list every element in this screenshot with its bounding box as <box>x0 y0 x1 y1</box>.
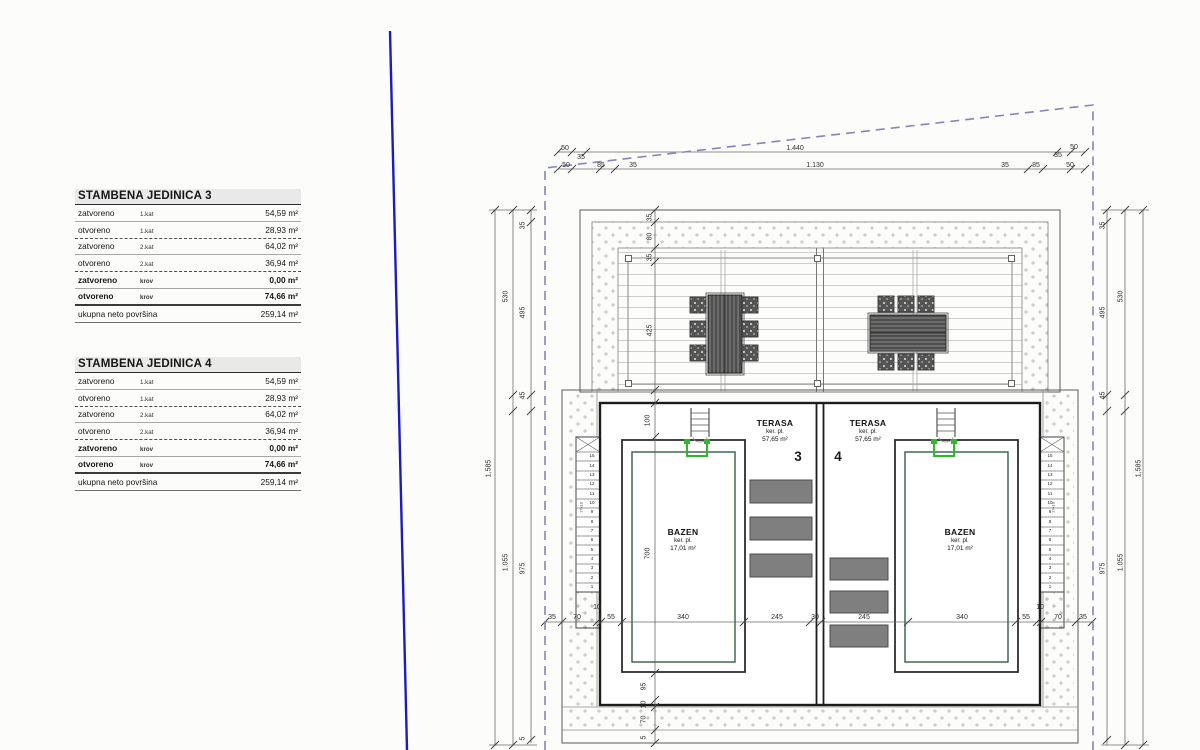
stair-step-number: 7 <box>1043 527 1057 536</box>
stair-step-number: 11 <box>585 489 599 498</box>
table-title: STAMBENA JEDINICA 3 <box>75 189 301 205</box>
table-row: zatvoreno krov 0,00 m² <box>75 440 301 457</box>
stair-step-number: 13 <box>585 471 599 480</box>
pool-label-unit4: BAZEN ker. pl. 17,01 m² <box>918 528 1002 552</box>
dim-label: 1,585 <box>486 447 493 491</box>
stair-step-number: 6 <box>1043 536 1057 545</box>
dim-label: 55 <box>589 614 633 621</box>
blueprint-page: STAMBENA JEDINICA 3 zatvoreno 1.kat 54,5… <box>0 0 1200 750</box>
dim-label: 245 <box>842 614 886 621</box>
stair-step-number: 13 <box>1043 471 1057 480</box>
table-row: otvoreno 2.kat 36,94 m² <box>75 255 301 272</box>
dim-label: 530 <box>1118 275 1125 319</box>
dim-label: 35 <box>1061 614 1105 621</box>
stair-step-number: 8 <box>585 517 599 526</box>
unit-number-3: 3 <box>787 449 809 464</box>
stair-step-number: 12 <box>585 480 599 489</box>
table-row: otvoreno krov 74,66 m² <box>75 457 301 474</box>
stair-step-number: 1 <box>1043 583 1057 592</box>
dim-label: 100 <box>645 399 652 443</box>
terrace-label-unit3: TERASA ker. pl. 57,65 m² <box>733 419 817 443</box>
stair-step-number: 7 <box>585 527 599 536</box>
dim-label: 425 <box>647 309 654 353</box>
dim-label: 495 <box>1100 291 1107 335</box>
dim-label: 35 <box>1036 152 1080 159</box>
stair-step-number: 10 <box>585 499 599 508</box>
stair-step-number: 1 <box>585 583 599 592</box>
dim-label: 495 <box>520 291 527 335</box>
dim-label: 10 <box>1018 604 1062 611</box>
area-table-unit-4: STAMBENA JEDINICA 4 zatvoreno 1.kat 54,5… <box>75 357 301 491</box>
stair-step-number: 4 <box>585 555 599 564</box>
table-row: zatvoreno 1.kat 54,59 m² <box>75 373 301 390</box>
table-total-row: ukupna neto površina 259,14 m² <box>75 306 301 324</box>
table-row: otvoreno 1.kat 28,93 m² <box>75 390 301 407</box>
stair-step-number: 9 <box>585 508 599 517</box>
stair-step-number: 5 <box>1043 545 1057 554</box>
roof-deck-planks <box>618 248 1022 392</box>
stair-step-number: 2 <box>585 573 599 582</box>
dim-label: 5 <box>520 717 527 750</box>
dim-label: 340 <box>940 614 984 621</box>
pool-label-unit3: BAZEN ker. pl. 17,01 m² <box>641 528 725 552</box>
table-row: zatvoreno 1.kat 54,59 m² <box>75 205 301 222</box>
dim-label: 45 <box>1100 374 1107 418</box>
stair-step-number: 2 <box>1043 573 1057 582</box>
terrace-walls <box>600 403 1040 705</box>
dim-label: 35 <box>520 204 527 248</box>
dim-label: 30 <box>793 614 837 621</box>
dim-label: 1.440 <box>773 145 817 152</box>
stair-step-number: 4 <box>1043 555 1057 564</box>
area-table-unit-3: STAMBENA JEDINICA 3 zatvoreno 1.kat 54,5… <box>75 189 301 323</box>
stair-step-number: 14 <box>1043 461 1057 470</box>
dim-label: 35 <box>611 162 655 169</box>
stair-step-number: 3 <box>1043 564 1057 573</box>
stair-step-numbers-left: 151413121110987654321 <box>585 452 599 592</box>
stair-step-number: 6 <box>585 536 599 545</box>
dim-label: 45 <box>520 374 527 418</box>
dim-label: 5 <box>641 716 648 750</box>
dim-label: 1,585 <box>1136 447 1143 491</box>
table-total-row: ukupna neto površina 259,14 m² <box>75 474 301 492</box>
terrace-label-unit4: TERASA ker. pl. 57,65 m² <box>826 419 910 443</box>
property-blue-line <box>390 31 407 750</box>
dim-label: 35 <box>647 236 654 280</box>
table-title: STAMBENA JEDINICA 4 <box>75 357 301 373</box>
dim-label: 975 <box>520 547 527 591</box>
dim-label: 1.055 <box>503 541 510 585</box>
stair-note-right: 17x18 <box>1051 493 1056 523</box>
table-row: zatvoreno 2.kat 64,02 m² <box>75 239 301 256</box>
dim-label: 35 <box>1100 204 1107 248</box>
dim-label: 975 <box>1100 547 1107 591</box>
dim-label: 10 <box>575 604 619 611</box>
dim-label: 340 <box>661 614 705 621</box>
stair-step-number: 15 <box>1043 452 1057 461</box>
stair-note-left: 17x18 <box>579 493 584 523</box>
unit-number-4: 4 <box>827 449 849 464</box>
table-row: zatvoreno krov 0,00 m² <box>75 272 301 289</box>
table-row: otvoreno 1.kat 28,93 m² <box>75 222 301 239</box>
stair-step-number: 15 <box>585 452 599 461</box>
dim-label: 530 <box>503 275 510 319</box>
table-row: zatvoreno 2.kat 64,02 m² <box>75 407 301 424</box>
stair-step-number: 14 <box>585 461 599 470</box>
stair-step-number: 5 <box>585 545 599 554</box>
dim-label: 50 <box>1048 162 1092 169</box>
dim-label: 50 <box>1052 144 1096 151</box>
dim-label: 50 <box>543 145 587 152</box>
table-row: otvoreno 2.kat 36,94 m² <box>75 423 301 440</box>
dim-label: 35 <box>559 154 603 161</box>
stair-step-number: 12 <box>1043 480 1057 489</box>
table-row: otvoreno krov 74,66 m² <box>75 289 301 306</box>
dim-label: 1.055 <box>1118 541 1125 585</box>
stair-step-number: 3 <box>585 564 599 573</box>
dim-label: 1.130 <box>793 162 837 169</box>
